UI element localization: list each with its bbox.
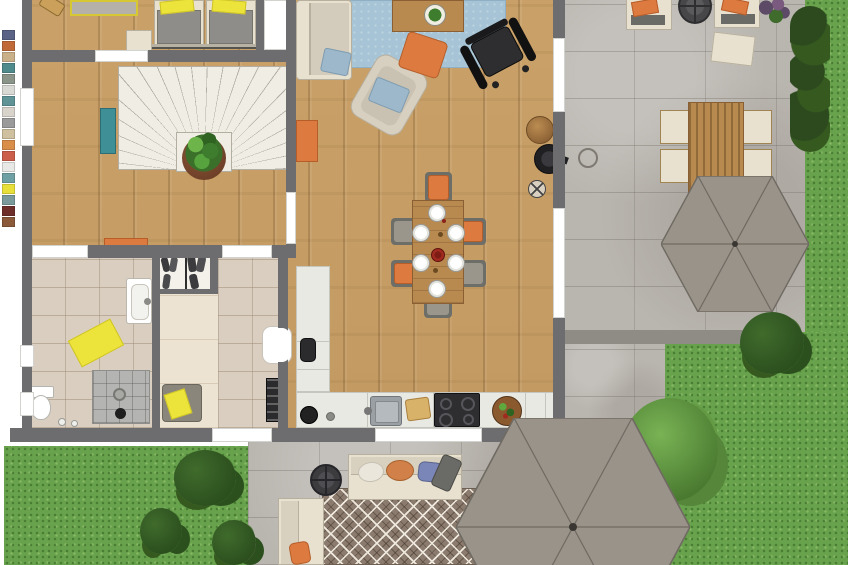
palette-swatch-10[interactable] [2, 140, 15, 150]
garden-bush [212, 520, 256, 565]
outdoor-chair [660, 110, 690, 144]
place-setting [412, 254, 430, 272]
window-right-2 [553, 208, 565, 318]
bed-right-blanket [209, 10, 253, 44]
terrace-parasol [456, 418, 690, 565]
orange-side-table [296, 120, 318, 162]
wheelchair-caster-left [491, 80, 500, 89]
plant-foliage [183, 132, 225, 174]
coffee-machine [300, 338, 316, 362]
bed-left-blanket [157, 10, 201, 44]
door-mudroom [222, 245, 272, 258]
place-setting [447, 254, 465, 272]
palette-swatch-4[interactable] [2, 74, 15, 84]
wall-bedroom-east [256, 0, 264, 56]
bath-accessory [58, 418, 66, 426]
bedroom-rug [70, 0, 138, 16]
fire-table [310, 464, 342, 496]
stair-plant [178, 130, 230, 182]
teal-sideboard [100, 108, 116, 154]
exterior-wall-left [22, 0, 32, 442]
patio-drain [578, 148, 598, 168]
counter-knob [326, 412, 335, 421]
door-bathroom [32, 245, 88, 258]
garden-tree [174, 450, 236, 506]
window-left-1 [20, 88, 34, 146]
door-hall-east [286, 192, 296, 244]
palette-swatch-7[interactable] [2, 107, 15, 117]
bed-right-footboard [204, 44, 258, 49]
nightstand [126, 30, 152, 52]
dining-chair-top [425, 172, 452, 203]
corner-sofa-pillow [288, 540, 312, 565]
opening-bedroom-east [264, 0, 288, 50]
table-deco-dot [438, 232, 443, 237]
palette-swatch-6[interactable] [2, 96, 15, 106]
table-deco-dot [433, 268, 438, 273]
patio-parasol [661, 176, 809, 312]
palette-swatch-17[interactable] [2, 217, 15, 227]
outdoor-chair [742, 110, 772, 144]
kitchen-tall-counter [296, 266, 330, 392]
palette-swatch-1[interactable] [2, 41, 15, 51]
fan-symbol [528, 180, 546, 198]
coffee-table-bowl [424, 4, 446, 26]
place-setting [447, 224, 465, 242]
garden-bush [140, 508, 182, 554]
toilet-bowl [31, 395, 51, 420]
palette-swatch-11[interactable] [2, 151, 15, 161]
place-setting [412, 224, 430, 242]
kitchen-sink [370, 396, 402, 426]
palette-swatch-0[interactable] [2, 30, 15, 40]
sun-lounger-left [626, 0, 672, 30]
palette-swatch-14[interactable] [2, 184, 15, 194]
window-bottom-1 [212, 428, 272, 442]
round-side-table [526, 116, 554, 144]
hedge [790, 6, 830, 152]
place-setting [428, 280, 446, 298]
pocket-door-overlay [264, 328, 290, 362]
door-bedroom [95, 50, 148, 62]
window-right-1 [553, 38, 565, 112]
red-bowl [431, 248, 445, 262]
bench [162, 384, 202, 422]
palette-swatch-5[interactable] [2, 85, 15, 95]
window-left-2 [20, 345, 34, 367]
vanity-sink [126, 278, 152, 324]
wall-closet-south [156, 289, 218, 294]
palette-swatch-8[interactable] [2, 118, 15, 128]
palette-swatch-12[interactable] [2, 162, 15, 172]
floor-plan-canvas [0, 0, 848, 565]
black-pot [300, 406, 318, 424]
wall-bedroom-south [22, 50, 296, 62]
garden-edge-band [563, 330, 753, 344]
bed-left-footboard [152, 44, 206, 49]
palette-swatch-9[interactable] [2, 129, 15, 139]
bath-accessory [71, 420, 78, 427]
shower-head [115, 408, 126, 419]
bench-cushion [164, 388, 193, 420]
sofa-pillow-orange [386, 460, 414, 481]
cutting-board [405, 396, 432, 421]
shower-drain [113, 388, 126, 401]
palette-swatch-2[interactable] [2, 52, 15, 62]
sun-lounger-right [714, 0, 760, 28]
shoe-rack [156, 252, 214, 292]
wheelchair-caster-right [521, 64, 530, 73]
window-left-3 [20, 392, 34, 416]
dark-tree-right [740, 312, 804, 374]
palette-swatch-3[interactable] [2, 63, 15, 73]
wall-bath-east [152, 258, 160, 428]
color-palette [2, 30, 14, 228]
palette-swatch-15[interactable] [2, 195, 15, 205]
wall-closet [210, 252, 218, 292]
table-deco-dot [442, 219, 446, 223]
palette-swatch-13[interactable] [2, 173, 15, 183]
palette-swatch-16[interactable] [2, 206, 15, 216]
patio-footstool [710, 32, 755, 67]
